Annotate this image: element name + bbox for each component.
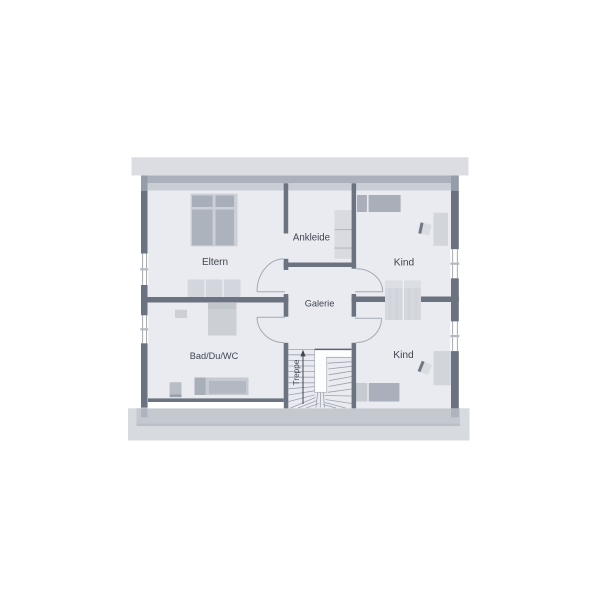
svg-text:Eltern: Eltern (202, 257, 228, 268)
svg-text:Bad/Du/WC: Bad/Du/WC (190, 351, 239, 361)
svg-text:Kind: Kind (394, 257, 415, 268)
svg-text:Kind: Kind (393, 350, 414, 361)
svg-text:Galerie: Galerie (305, 299, 335, 309)
svg-text:Treppe: Treppe (292, 359, 301, 385)
svg-text:Ankleide: Ankleide (293, 233, 330, 244)
